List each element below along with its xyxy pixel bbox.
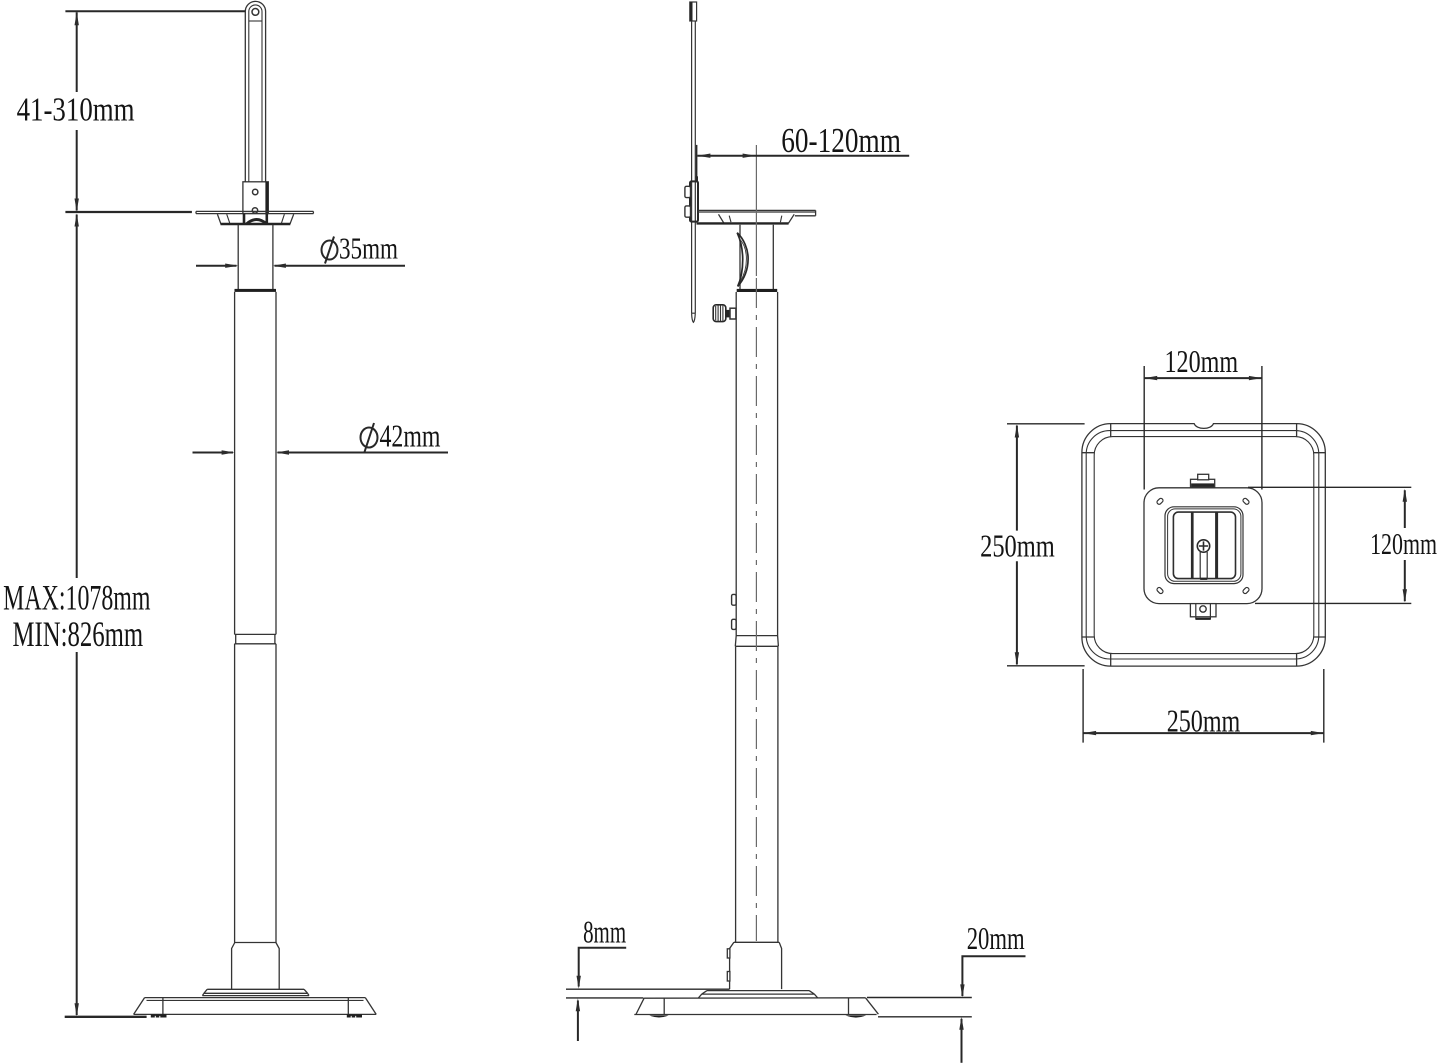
svg-text:41-310mm: 41-310mm — [17, 92, 135, 129]
svg-text:20mm: 20mm — [967, 920, 1025, 956]
svg-text:250mm: 250mm — [1167, 703, 1241, 739]
svg-text:120mm: 120mm — [1165, 343, 1239, 379]
svg-text:8mm: 8mm — [583, 914, 626, 950]
svg-text:MAX:1078mm: MAX:1078mm — [3, 577, 150, 617]
svg-text:MIN:826mm: MIN:826mm — [13, 614, 144, 654]
svg-text:120mm: 120mm — [1370, 526, 1437, 561]
svg-text:250mm: 250mm — [980, 527, 1055, 563]
svg-text:42mm: 42mm — [380, 418, 441, 454]
svg-text:60-120mm: 60-120mm — [781, 121, 901, 160]
svg-text:35mm: 35mm — [339, 231, 398, 266]
